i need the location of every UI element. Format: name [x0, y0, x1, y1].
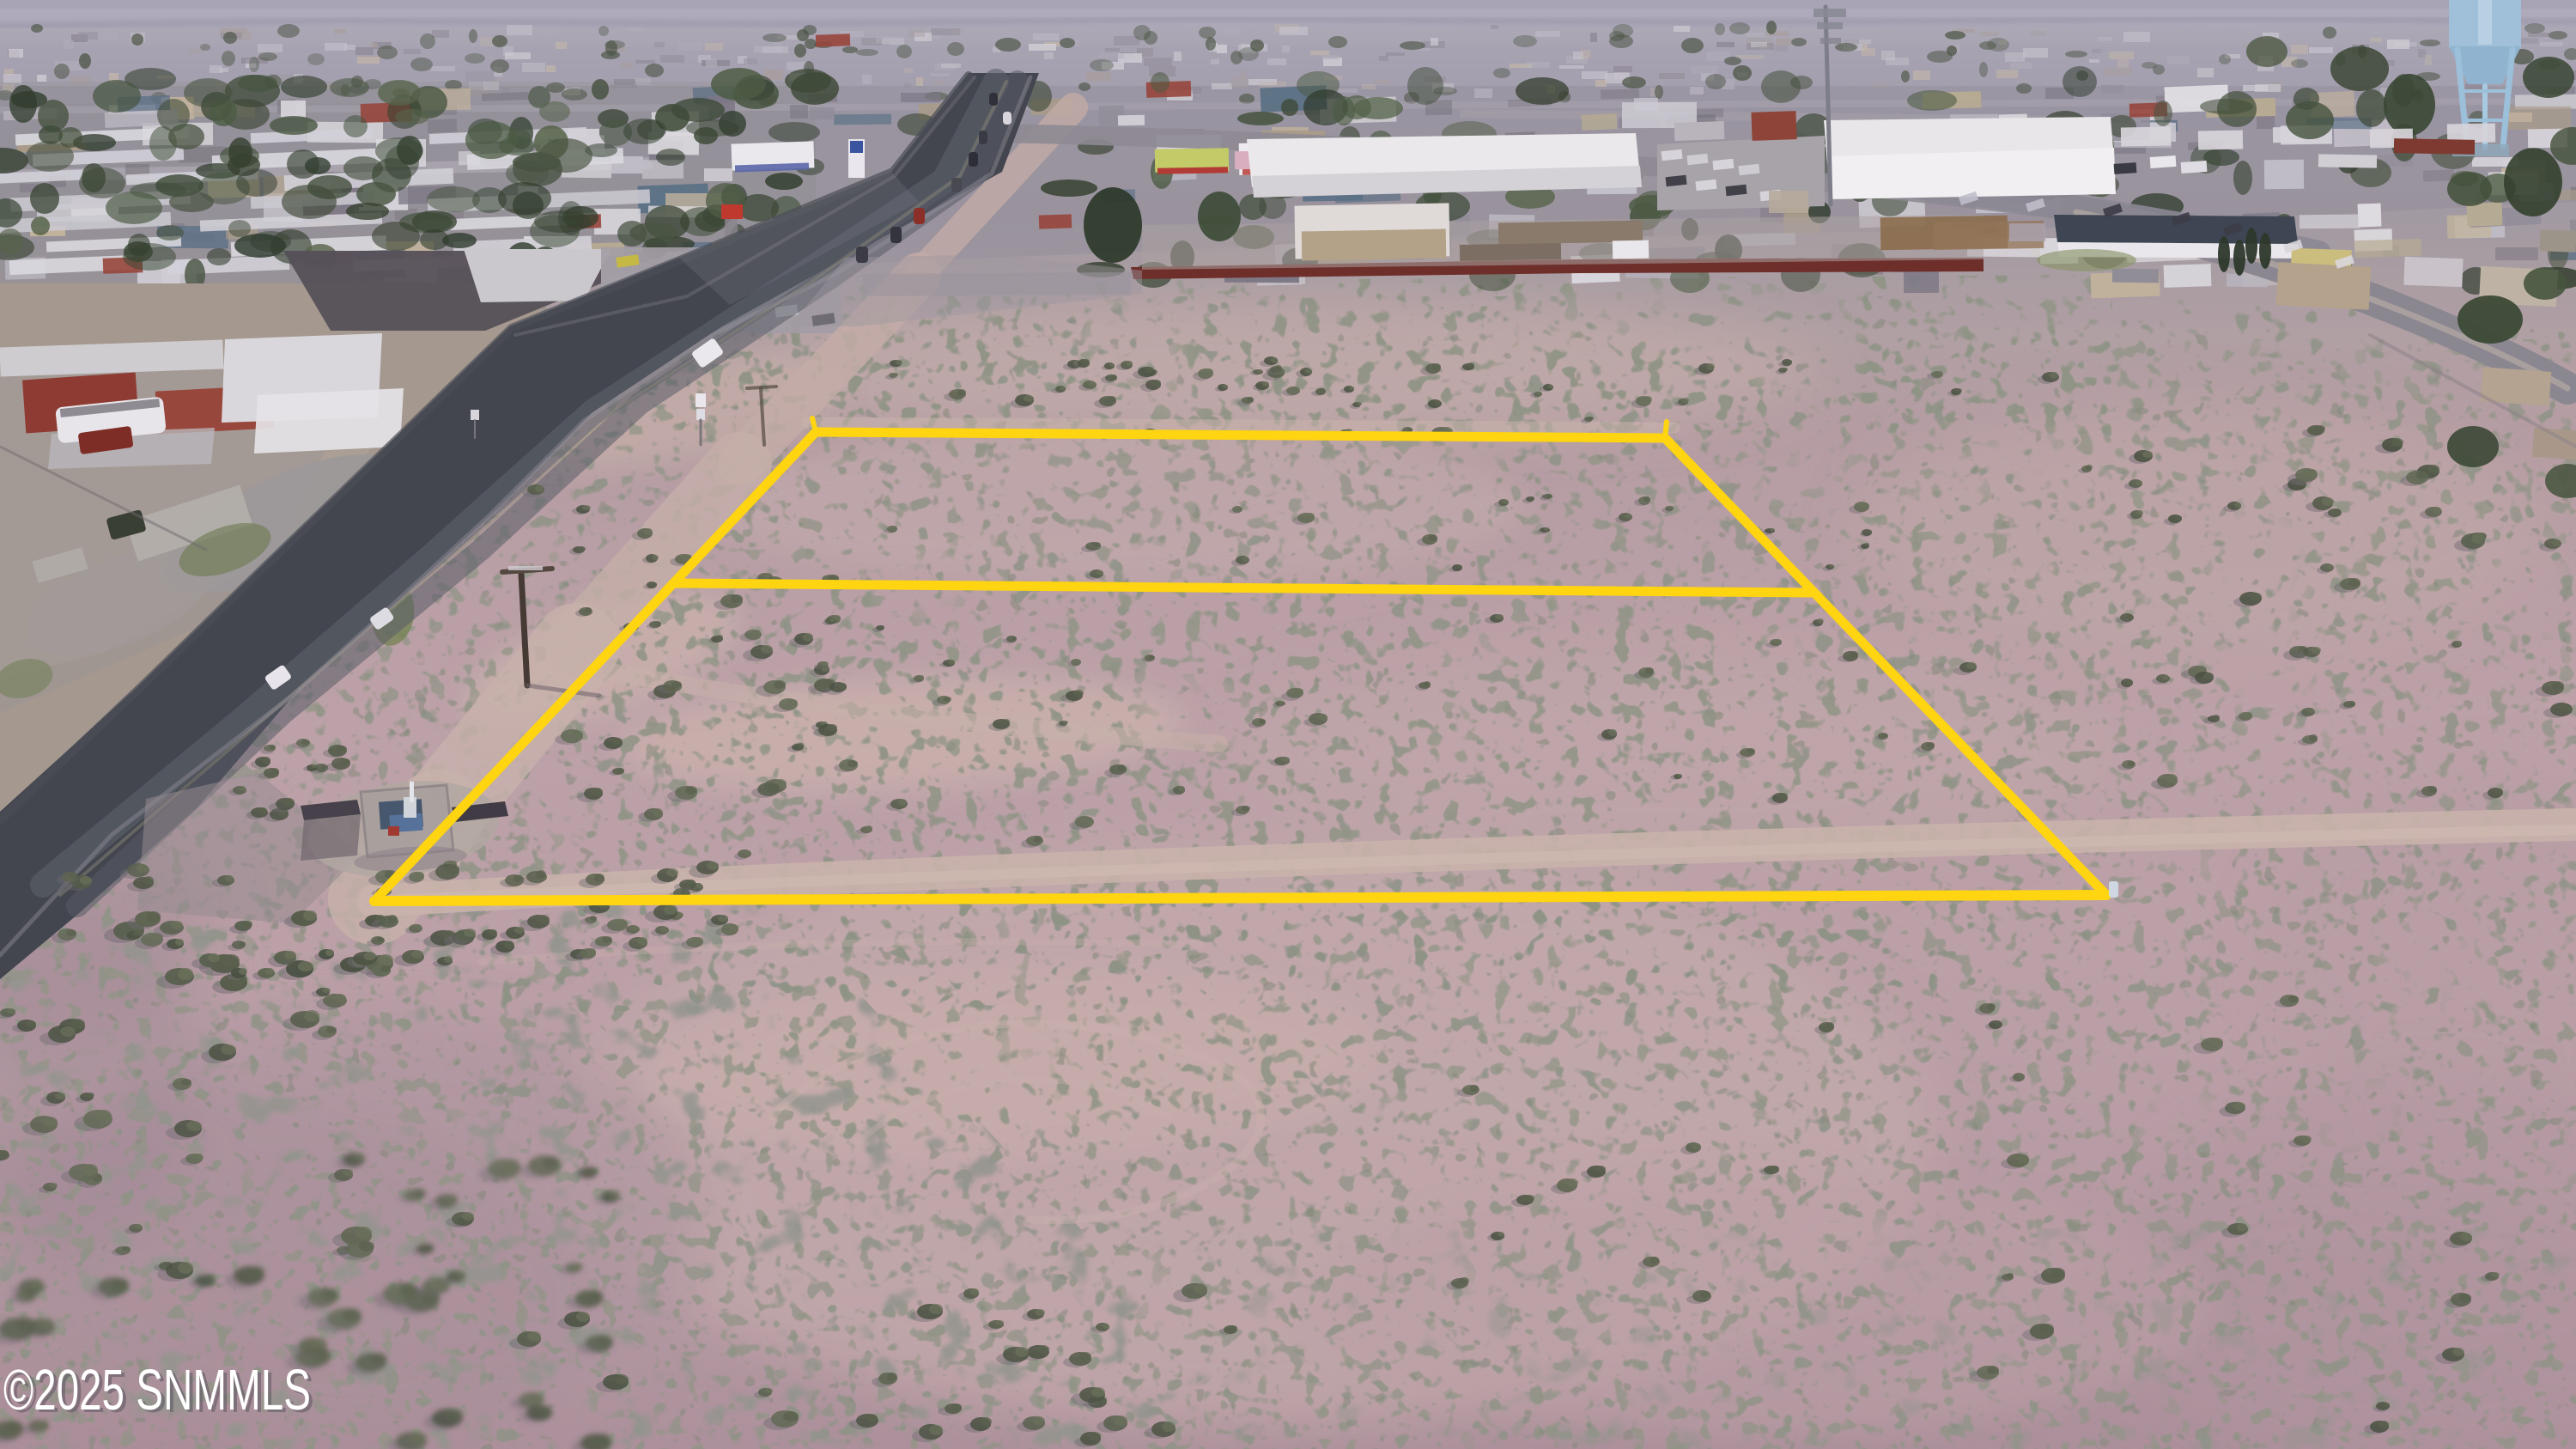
svg-text:©2025 SNMMLS: ©2025 SNMMLS	[3, 1358, 311, 1422]
